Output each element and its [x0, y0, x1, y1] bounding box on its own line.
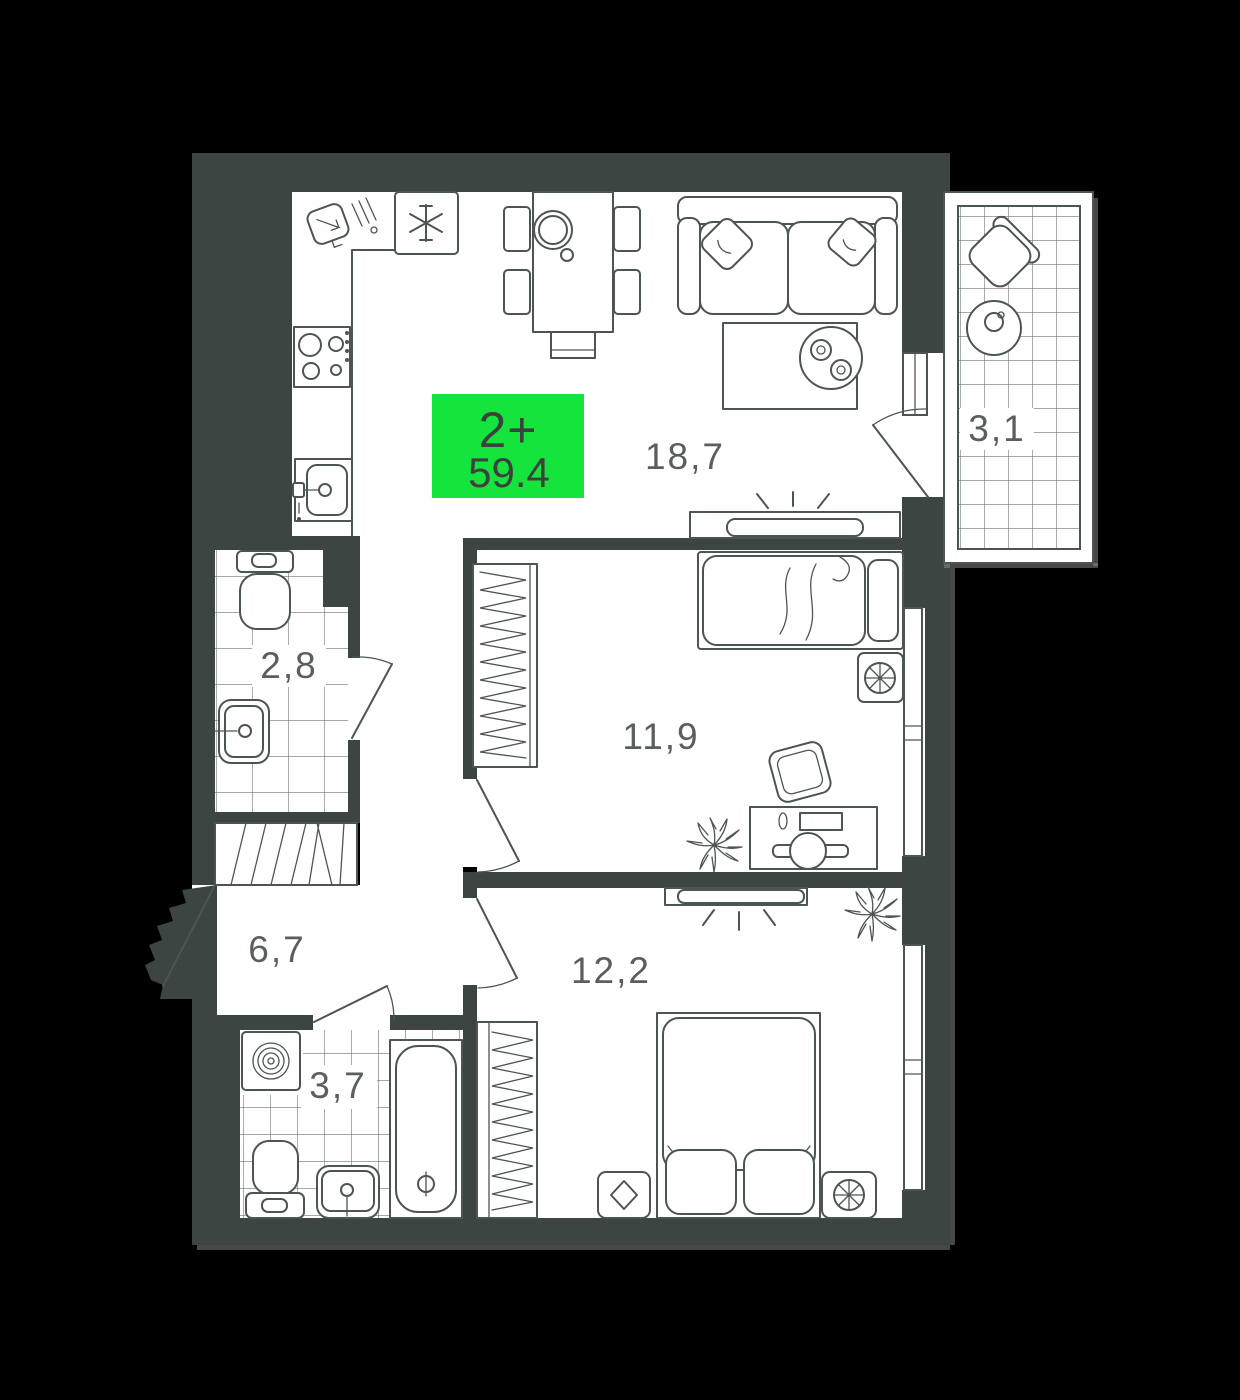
- kitchen-living-area-label: 18,7: [645, 436, 725, 477]
- floor-plan-page: 3,1: [0, 0, 1240, 1400]
- toilet: [237, 551, 293, 629]
- sofa: [678, 197, 897, 314]
- coffee-table: [723, 323, 862, 409]
- area-badge: 2+ 59.4: [432, 394, 584, 498]
- bedside-chest-right: [822, 1172, 876, 1218]
- kitchen-stove: [294, 327, 350, 387]
- hallway-area-label: 6,7: [248, 929, 305, 970]
- nightstand: [858, 653, 903, 702]
- fridge-icon: [395, 192, 458, 254]
- room-balcony: 3,1: [944, 192, 1093, 563]
- washing-machine: [242, 1032, 300, 1090]
- bedroom-1-area-label: 11,9: [622, 716, 699, 757]
- single-bed: [698, 552, 903, 649]
- badge-total-area: 59.4: [468, 449, 550, 496]
- bathroom-sink: [317, 1166, 379, 1218]
- toilet: [246, 1141, 304, 1218]
- bathroom-small-area-label: 2,8: [260, 645, 317, 686]
- bathroom-sink: [215, 700, 269, 763]
- wardrobe: [477, 1022, 537, 1218]
- kitchen-sink: [293, 459, 352, 521]
- balcony-area-label: 3,1: [968, 408, 1025, 449]
- bedside-chest-left: [598, 1172, 650, 1218]
- wardrobe: [473, 564, 537, 767]
- balcony-table: [967, 301, 1021, 355]
- floor-plan: 3,1: [0, 0, 1240, 1400]
- bathtub: [390, 1040, 462, 1218]
- bathroom-big-area-label: 3,7: [309, 1065, 366, 1106]
- double-bed: [657, 1013, 820, 1218]
- bedroom-2-area-label: 12,2: [571, 950, 651, 991]
